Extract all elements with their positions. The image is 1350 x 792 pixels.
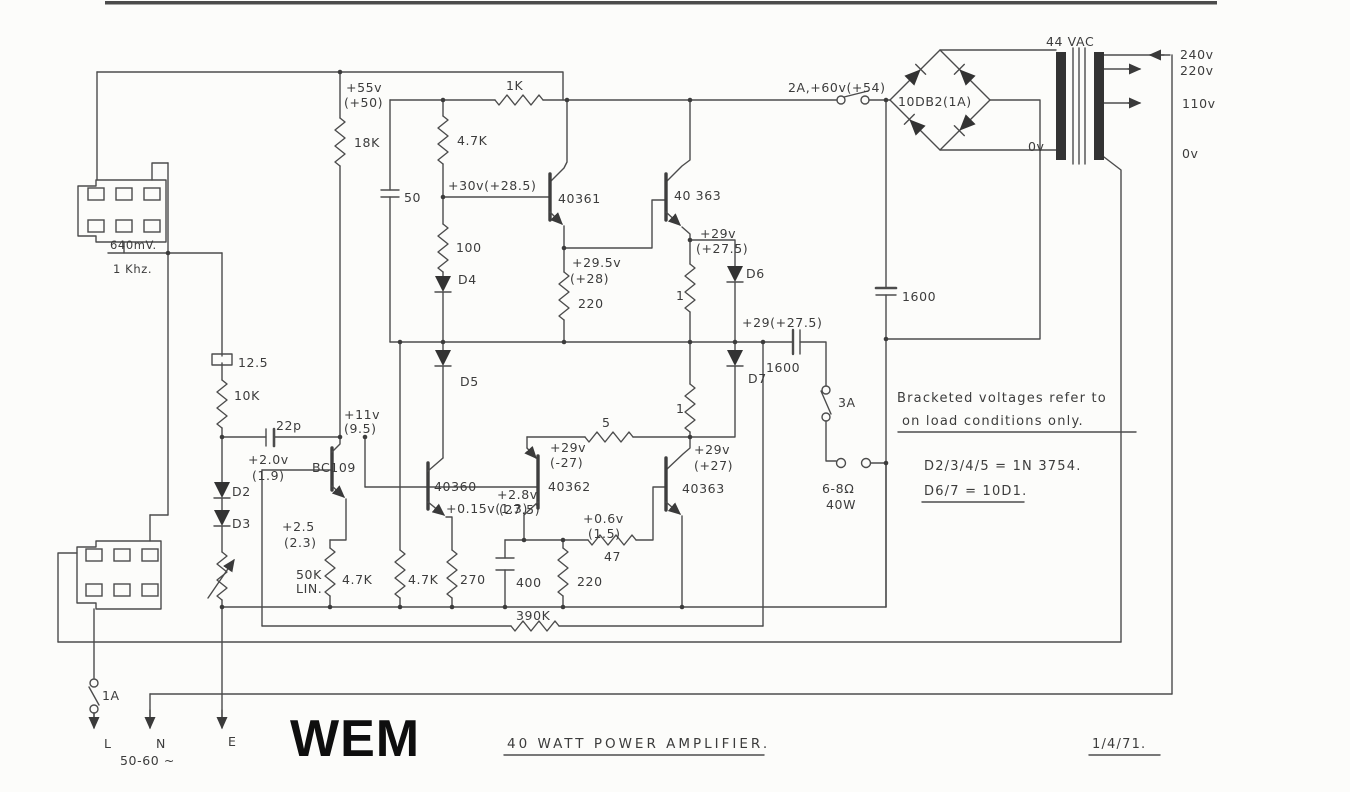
- label-q40363-top: 40 363: [674, 188, 721, 203]
- page-title: 40 WATT POWER AMPLIFIER.: [507, 736, 770, 752]
- fuse-2a-terminal: [861, 96, 869, 104]
- label-d7: D7: [748, 371, 767, 386]
- transistor-40363-bot: [666, 458, 680, 514]
- wires: [58, 50, 1172, 718]
- junctions: [166, 70, 889, 610]
- label-c1600-out: 1600: [766, 360, 800, 375]
- label-v11b: (9.5): [344, 421, 377, 436]
- label-r47k-top: 4.7K: [457, 133, 488, 148]
- label-r220-bot: 220: [577, 574, 603, 589]
- note-line-1: Bracketed voltages refer to: [897, 391, 1107, 406]
- input-connector: [78, 180, 166, 242]
- diode-d6: [727, 266, 743, 282]
- label-rail-55: +55v: [346, 80, 382, 95]
- label-r1k: 1K: [506, 78, 524, 93]
- resistor-270: [447, 550, 457, 598]
- label-r390k: 390K: [516, 608, 551, 623]
- label-fuse-2a: 2A,+60v(+54): [788, 80, 886, 95]
- label-c22p: 22p: [276, 418, 302, 433]
- label-v25b: (2.3): [284, 535, 317, 550]
- label-r100: 100: [456, 240, 482, 255]
- label-mains-hz: 50-60 ~: [120, 753, 175, 768]
- label-input-freq: 1 Khz.: [113, 262, 152, 276]
- label-out-load: 6-8Ω: [822, 481, 854, 496]
- brand-logo: WEM: [290, 710, 420, 768]
- fuse-1a-terminal: [90, 679, 98, 687]
- label-bridge: 10DB2(1A): [898, 94, 972, 109]
- resistor-18k: [335, 118, 345, 166]
- label-v015: +0.15v(1.3): [446, 501, 528, 516]
- transistors: [332, 174, 680, 515]
- date: 1/4/71.: [1092, 737, 1146, 752]
- label-r47k-a: 4.7K: [342, 572, 373, 587]
- label-c1600-res: 1600: [902, 289, 936, 304]
- cap-22p: [266, 429, 274, 446]
- label-tap-110: 110v: [1182, 96, 1216, 111]
- speaker-jack-terminal: [837, 459, 846, 468]
- fuse-3a-terminal: [822, 413, 830, 421]
- resistor-220-bot: [558, 548, 568, 596]
- output-connector: [77, 541, 161, 609]
- label-q40363-bot: 40363: [682, 481, 725, 496]
- diode-d3: [214, 510, 230, 526]
- label-r47k-b: 4.7K: [408, 572, 439, 587]
- cap-1600-out: [793, 330, 800, 354]
- label-mains-e: E: [228, 734, 237, 749]
- label-c125: 12.5: [238, 355, 268, 370]
- label-v29c: +29v: [550, 440, 586, 455]
- diode-d7: [727, 350, 743, 366]
- notes: Bracketed voltages refer to on load cond…: [897, 391, 1136, 502]
- label-r1a: 1: [676, 288, 685, 303]
- label-r18k: 18K: [354, 135, 380, 150]
- label-bc109: BC109: [312, 460, 356, 475]
- label-c50: 50: [404, 190, 421, 205]
- cap-400: [496, 558, 514, 570]
- resistor-10k: [217, 380, 227, 428]
- fuse-1a-terminal: [90, 705, 98, 713]
- schematic-canvas: +55v (+50) 18K 1K 4.7K 50 +30v(+28.5) 40…: [0, 0, 1350, 792]
- resistor-4k7-b: [395, 550, 405, 598]
- resistor-4k7-a: [325, 548, 335, 596]
- label-v30: +30v(+28.5): [448, 178, 536, 193]
- diode-d5: [435, 350, 451, 366]
- label-v29cb: (-27): [550, 455, 583, 470]
- resistor-4k7-top: [438, 116, 448, 164]
- scan-edge: [105, 1, 1217, 5]
- label-r270: 270: [460, 572, 486, 587]
- label-mains-l: L: [104, 736, 112, 751]
- resistor-1-b: [685, 384, 695, 432]
- note-diodes-2: D6/7 = 10D1.: [924, 484, 1027, 499]
- label-r1b: 1: [676, 401, 685, 416]
- label-q40360: 40360: [434, 479, 477, 494]
- resistor-220-top: [559, 272, 569, 320]
- label-v29x: +29(+27.5): [742, 315, 822, 330]
- diode-d2: [214, 482, 230, 498]
- label-d2: D2: [232, 484, 251, 499]
- label-v06b: (1.5): [588, 526, 621, 541]
- resistors: [208, 95, 695, 631]
- label-tap-0: 0v: [1182, 146, 1199, 161]
- label-44vac: 44 VAC: [1046, 34, 1094, 49]
- label-sec-0: 0v: [1028, 139, 1045, 154]
- speaker-jack-terminal: [862, 459, 871, 468]
- label-c400: 400: [516, 575, 542, 590]
- label-pot-lin: LIN.: [296, 581, 322, 596]
- label-v295: +29.5v: [572, 255, 621, 270]
- cap-1600-res: [876, 288, 896, 295]
- resistor-100: [438, 224, 448, 272]
- label-tap-220: 220v: [1180, 63, 1214, 78]
- title-block: WEM 40 WATT POWER AMPLIFIER. 1/4/71.: [290, 710, 1160, 768]
- label-d6: D6: [746, 266, 765, 281]
- fuse-2a-terminal: [837, 96, 845, 104]
- label-r220-top: 220: [578, 296, 604, 311]
- schematic-page: +55v (+50) 18K 1K 4.7K 50 +30v(+28.5) 40…: [0, 0, 1350, 792]
- resistor-1-a: [685, 264, 695, 312]
- label-fuse-3a: 3A: [838, 395, 856, 410]
- resistor-1k: [495, 95, 543, 105]
- diode-d4: [435, 276, 451, 292]
- label-rail-55b: (+50): [344, 95, 383, 110]
- label-d4: D4: [458, 272, 477, 287]
- transformer: [1056, 48, 1104, 164]
- label-r5: 5: [602, 415, 611, 430]
- label-pot: 50K: [296, 567, 322, 582]
- pot-50k: [217, 552, 227, 600]
- label-v28: +2.8v: [497, 487, 538, 502]
- label-q40362: 40362: [548, 479, 591, 494]
- label-r47: 47: [604, 549, 621, 564]
- label-v25: +2.5: [282, 519, 315, 534]
- label-v06: +0.6v: [583, 511, 624, 526]
- label-out-power: 40W: [826, 497, 856, 512]
- label-r10k: 10K: [234, 388, 260, 403]
- label-v295b: (+28): [570, 271, 609, 286]
- label-d5: D5: [460, 374, 479, 389]
- label-v29ab: (+27.5): [696, 241, 748, 256]
- label-v20: +2.0v: [248, 452, 289, 467]
- label-d3: D3: [232, 516, 251, 531]
- label-input-level: 640mV.: [110, 238, 157, 252]
- resistor-5: [585, 432, 633, 442]
- label-v20b: (1.9): [252, 468, 285, 483]
- cap-50: [381, 190, 399, 197]
- label-v29a: +29v: [700, 226, 736, 241]
- note-line-2: on load conditions only.: [902, 414, 1084, 429]
- label-fuse-1a: 1A: [102, 688, 120, 703]
- label-v29db: (+27): [694, 458, 733, 473]
- capacitors: [212, 190, 896, 570]
- label-v29d: +29v: [694, 442, 730, 457]
- label-v11: +11v: [344, 407, 380, 422]
- label-tap-240: 240v: [1180, 47, 1214, 62]
- label-mains-n: N: [156, 736, 166, 751]
- label-q40361: 40361: [558, 191, 601, 206]
- fuse-3a-terminal: [822, 386, 830, 394]
- note-diodes-1: D2/3/4/5 = 1N 3754.: [924, 459, 1082, 474]
